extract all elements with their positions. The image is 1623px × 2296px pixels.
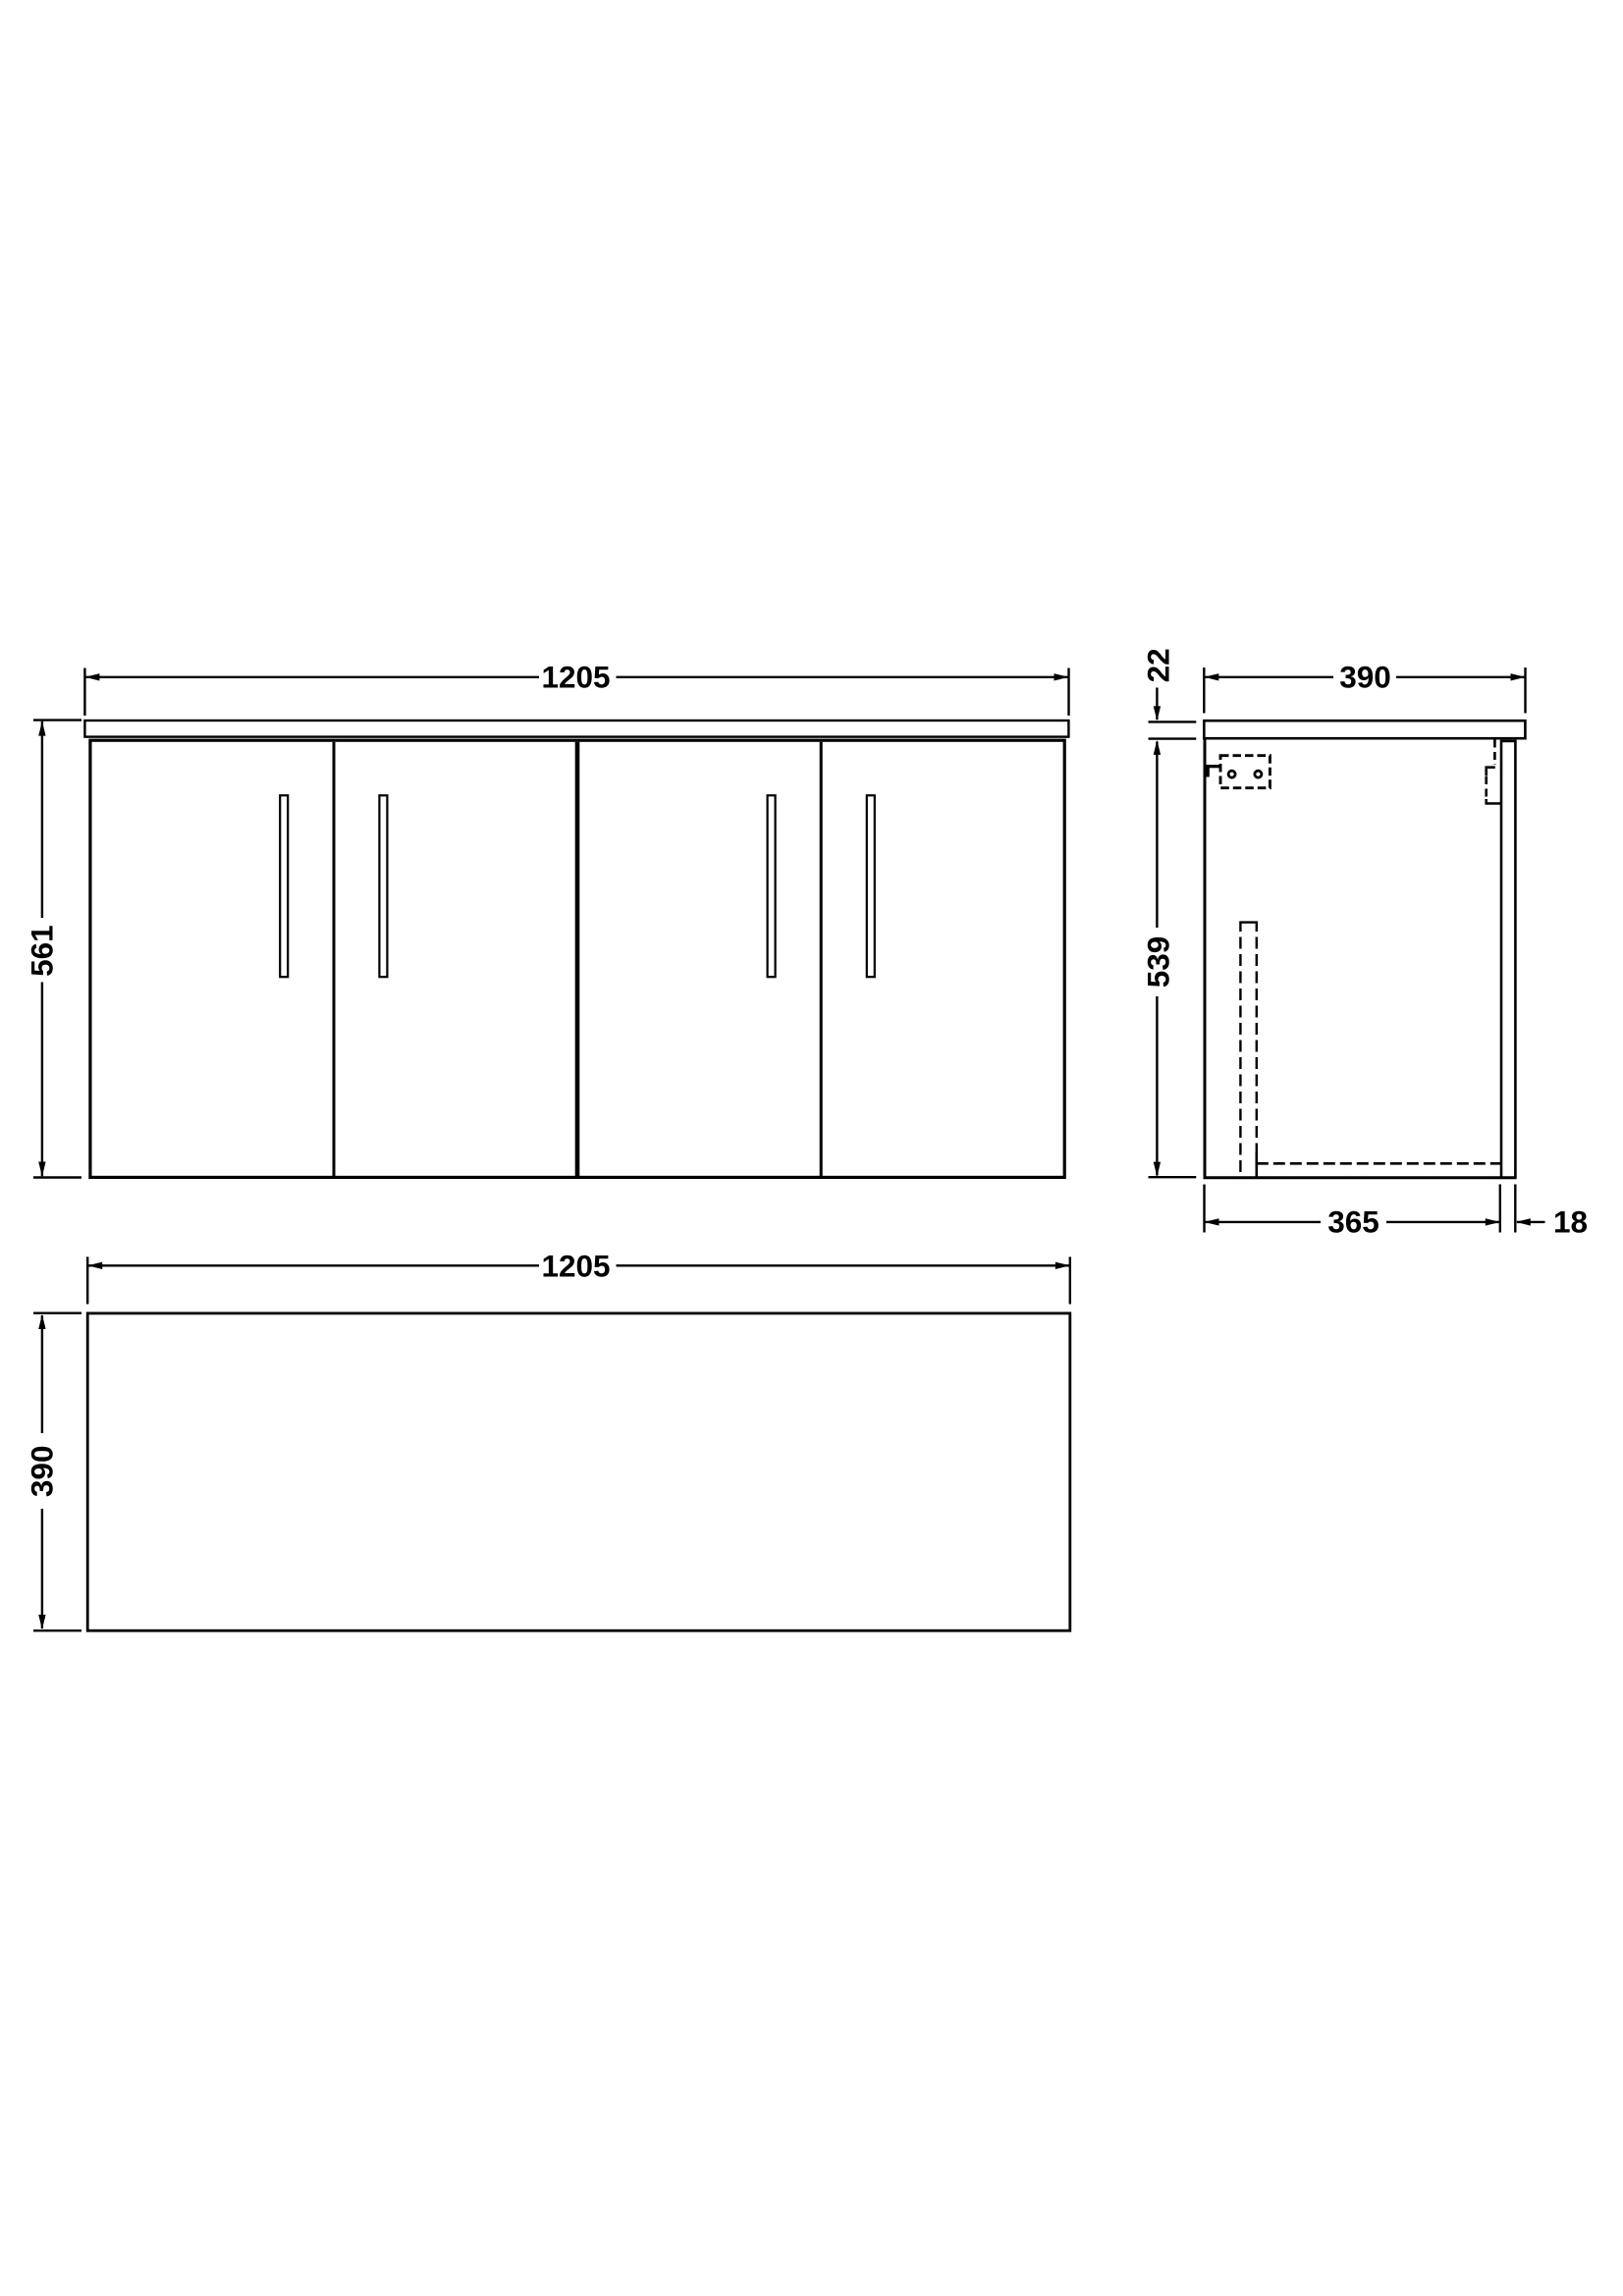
svg-text:1205: 1205 — [541, 660, 610, 695]
svg-text:365: 365 — [1327, 1204, 1380, 1240]
svg-text:22: 22 — [1141, 648, 1176, 682]
svg-text:561: 561 — [25, 925, 60, 977]
svg-text:539: 539 — [1140, 936, 1175, 988]
svg-text:1205: 1205 — [541, 1249, 610, 1284]
svg-text:18: 18 — [1553, 1204, 1588, 1240]
svg-text:390: 390 — [25, 1446, 60, 1498]
svg-text:390: 390 — [1339, 660, 1391, 695]
